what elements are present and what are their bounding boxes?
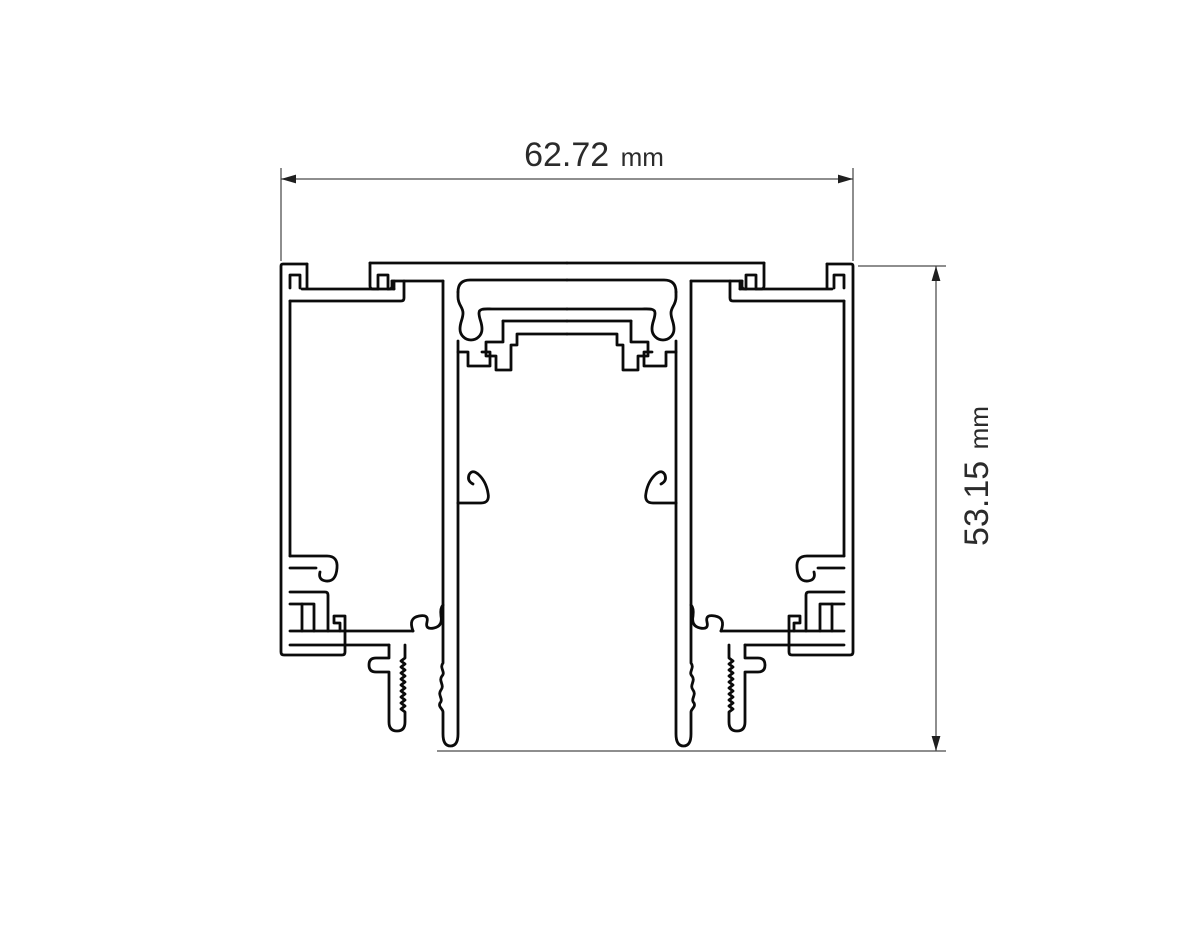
width-dimension: 62.72 mm [281, 136, 853, 261]
height-dimension: 53.15 mm [437, 266, 996, 751]
profile-left-half [281, 263, 567, 746]
width-arrow-left [281, 175, 296, 184]
width-dimension-label: 62.72 mm [524, 136, 664, 174]
technical-drawing: 62.72 mm 53.15 mm [0, 0, 1200, 933]
height-dimension-label: 53.15 mm [958, 406, 996, 546]
height-unit: mm [964, 406, 994, 449]
width-unit: mm [621, 142, 664, 172]
width-arrow-right [838, 175, 853, 184]
drawing-canvas: 62.72 mm 53.15 mm [0, 0, 1200, 933]
height-value: 53.15 [958, 461, 996, 546]
height-arrow-top [932, 266, 941, 281]
width-value: 62.72 [524, 136, 609, 174]
height-arrow-bottom [932, 736, 941, 751]
profile-right-half [567, 263, 853, 746]
profile-geometry [281, 263, 853, 746]
